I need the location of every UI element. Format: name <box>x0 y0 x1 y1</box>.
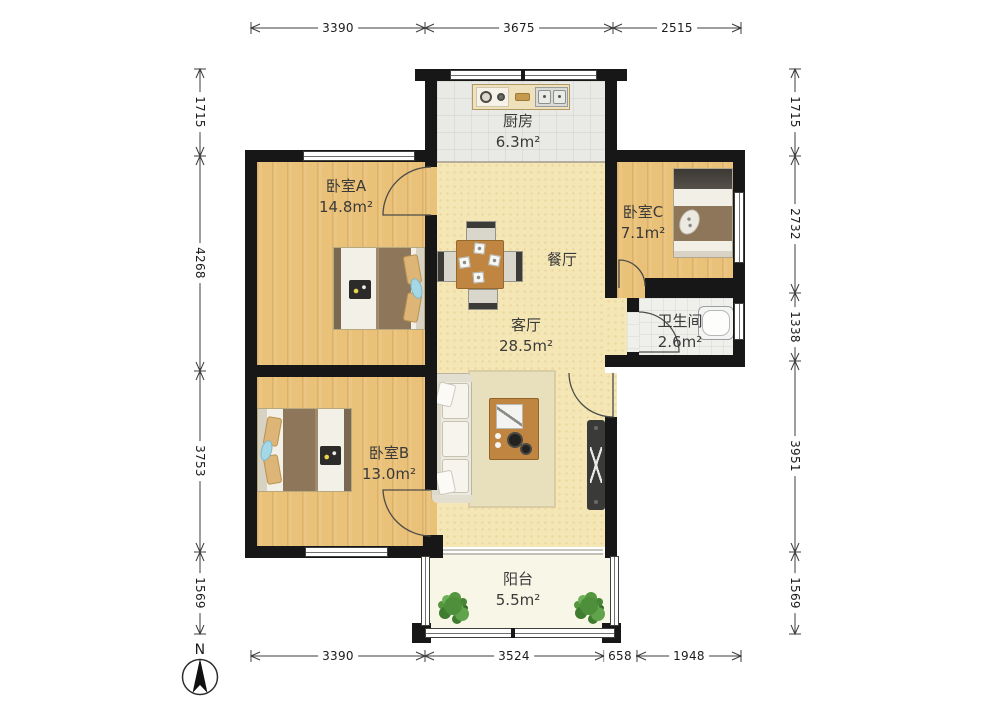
balcony-threshold-line <box>443 550 603 554</box>
dim-label-top-2: 3675 <box>499 21 539 35</box>
room-label-bedroom-c: 卧室C 7.1m² <box>621 202 665 244</box>
dim-label-top-3: 2515 <box>657 21 697 35</box>
room-name: 阳台 <box>496 569 540 590</box>
room-area: 5.5m² <box>496 590 540 611</box>
room-label-dining: 餐厅 <box>547 250 577 271</box>
room-area: 14.8m² <box>319 197 373 218</box>
door-arc-entry <box>569 373 613 417</box>
door-arc-bedroom-a <box>383 167 431 215</box>
dim-label-left-2: 4268 <box>193 243 207 283</box>
dim-label-right-3: 1338 <box>788 307 802 347</box>
room-name: 厨房 <box>496 111 540 132</box>
dim-label-right-1: 1715 <box>788 92 802 132</box>
room-name: 客厅 <box>499 315 553 336</box>
room-area: 13.0m² <box>362 464 416 485</box>
room-label-bedroom-b: 卧室B 13.0m² <box>362 443 416 485</box>
room-label-balcony: 阳台 5.5m² <box>496 569 540 611</box>
door-arc-bedroom-b <box>383 490 431 536</box>
compass-north-label: N <box>191 642 210 658</box>
room-label-living: 客厅 28.5m² <box>499 315 553 357</box>
room-area: 7.1m² <box>621 223 665 244</box>
dim-label-left-4: 1569 <box>193 573 207 613</box>
dim-label-top-1: 3390 <box>318 21 358 35</box>
floor-plan: 厨房 6.3m² 卧室A 14.8m² 卧室C 7.1m² 餐厅 客厅 28.5… <box>0 0 1000 711</box>
dim-label-right-4: 3951 <box>788 436 802 476</box>
room-label-bedroom-a: 卧室A 14.8m² <box>319 176 373 218</box>
room-name: 餐厅 <box>547 250 577 271</box>
room-name: 卧室A <box>319 176 373 197</box>
room-area: 2.6m² <box>657 332 702 353</box>
room-area: 28.5m² <box>499 336 553 357</box>
room-name: 卧室B <box>362 443 416 464</box>
dim-label-right-5: 1569 <box>788 573 802 613</box>
dim-label-bottom-4: 1948 <box>669 649 709 663</box>
dim-label-bottom-1: 3390 <box>318 649 358 663</box>
door-arc-bedroom-c <box>619 260 645 288</box>
dim-label-left-1: 1715 <box>193 92 207 132</box>
dim-label-left-3: 3753 <box>193 441 207 481</box>
room-name: 卫生间 <box>657 311 702 332</box>
room-label-bathroom: 卫生间 2.6m² <box>657 311 702 353</box>
dim-label-bottom-2: 3524 <box>494 649 534 663</box>
room-name: 卧室C <box>621 202 665 223</box>
room-area: 6.3m² <box>496 132 540 153</box>
dim-label-right-2: 2732 <box>788 204 802 244</box>
room-label-kitchen: 厨房 6.3m² <box>496 111 540 153</box>
north-needle-icon <box>193 659 208 694</box>
dim-label-bottom-3: 658 <box>604 649 636 663</box>
